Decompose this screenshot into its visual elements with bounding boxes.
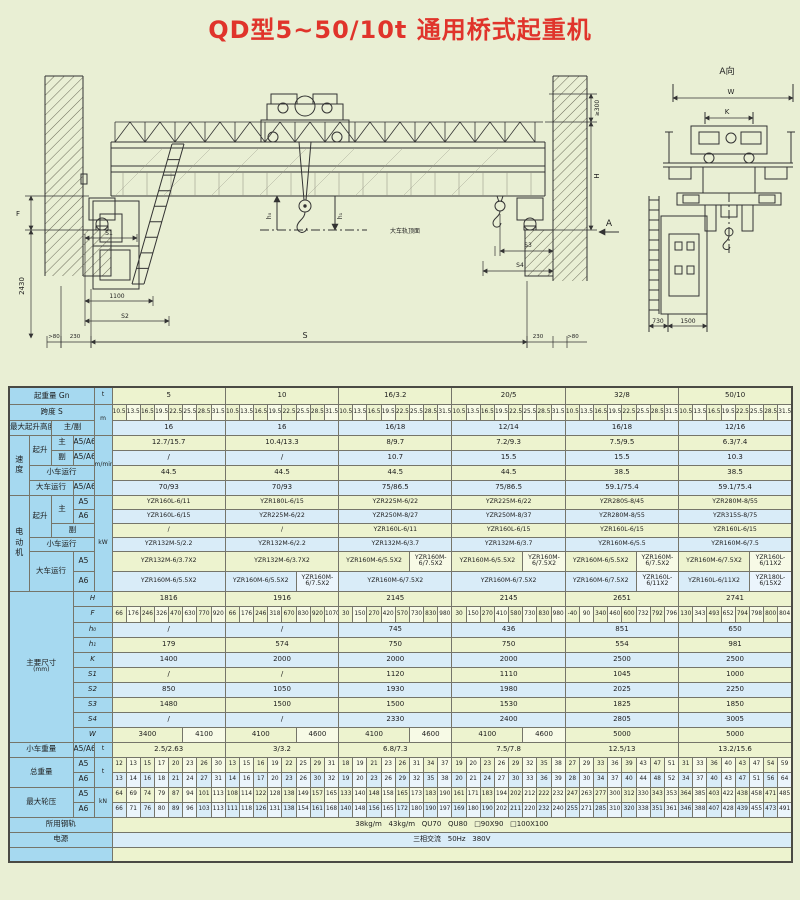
capacity-value: 16/3.2 [339, 387, 452, 404]
total-weight-a6: 40 [622, 772, 636, 787]
span-value: 19.5 [381, 404, 395, 420]
dim-K: 1400 [112, 652, 225, 667]
speed-hoist-aux: / [225, 450, 338, 465]
dim-S3: 1500 [339, 697, 452, 712]
motor-hoist-main-a5: YZR225M-6/22 [339, 495, 452, 509]
dim-F: 580 [509, 606, 523, 622]
dim-S3: 1825 [565, 697, 678, 712]
wheel-load-a5: 385 [693, 787, 707, 802]
wheel-load-a5: 113 [211, 787, 225, 802]
dim-F: 340 [594, 606, 608, 622]
wheel-load-a5: 148 [367, 787, 381, 802]
total-weight-a6: 34 [679, 772, 693, 787]
wheel-load-a5: 165 [324, 787, 338, 802]
total-weight-a5: 26 [197, 757, 211, 772]
table-row: h₁179574750750554981 [9, 637, 792, 652]
dim-H: 1916 [225, 591, 338, 606]
label-power: 电源 [9, 832, 112, 847]
table-row: h₀//745436851650 [9, 622, 792, 637]
total-weight-a6: 39 [551, 772, 565, 787]
total-weight-a5: 35 [537, 757, 551, 772]
table-row: S3148015001500153018251850 [9, 697, 792, 712]
label-trolley-travel: 小车运行 [29, 537, 94, 551]
span-value: 31.5 [664, 404, 678, 420]
motor-bridge-a6: YZR160M-6/7.5X2 [565, 571, 636, 591]
label-span: 跨度 S [9, 404, 94, 420]
wheel-load-a6: 220 [523, 802, 537, 817]
wheel-load-a5: 312 [622, 787, 636, 802]
dim-F: 460 [608, 606, 622, 622]
total-weight-a5: 43 [735, 757, 749, 772]
label-bridge-travel: 大车运行 [29, 551, 73, 591]
total-weight-a5: 33 [594, 757, 608, 772]
motor-trolley: YZR132M-6/3.7 [452, 537, 565, 551]
wheel-load-a5: 194 [494, 787, 508, 802]
total-weight-a6: 47 [735, 772, 749, 787]
motor-hoist-aux: / [225, 523, 338, 537]
total-weight-a6: 52 [664, 772, 678, 787]
total-weight-a5: 29 [310, 757, 324, 772]
total-weight-a6: 40 [707, 772, 721, 787]
speed-hoist-main: 10.4/13.3 [225, 435, 338, 450]
total-weight-a5: 31 [679, 757, 693, 772]
dim-S1: 1000 [679, 667, 792, 682]
dim-F: 798 [749, 606, 763, 622]
motor-bridge-a6: YZR160L-6/11X2 [679, 571, 750, 591]
span-value: 13.5 [693, 404, 707, 420]
span-value: 10.5 [679, 404, 693, 420]
wheel-load-a5: 140 [353, 787, 367, 802]
wheel-load-a6: 240 [551, 802, 565, 817]
wheel-load-a5: 149 [296, 787, 310, 802]
dim-F: 318 [268, 606, 282, 622]
wheel-load-a5: 330 [636, 787, 650, 802]
dim-S1: 1110 [452, 667, 565, 682]
label-main: 主 [51, 435, 73, 450]
lift-height-value: 16 [112, 420, 225, 435]
total-weight-a5: 20 [466, 757, 480, 772]
total-weight-a5: 18 [339, 757, 353, 772]
wheel-load-a5: 277 [594, 787, 608, 802]
label-empty [9, 847, 112, 862]
unit-kn: kN [94, 787, 112, 817]
total-weight-a5: 31 [324, 757, 338, 772]
wheel-load-a5: 138 [282, 787, 296, 802]
total-weight-a6: 14 [126, 772, 140, 787]
total-weight-a5: 29 [509, 757, 523, 772]
wheel-load-a5: 232 [551, 787, 565, 802]
span-value: 13.5 [240, 404, 254, 420]
unit-kw: kW [94, 495, 112, 591]
table-row: A6YZR160L-6/15YZR225M-6/22YZR250M-8/27YZ… [9, 509, 792, 523]
dim-K: 2500 [565, 652, 678, 667]
label-hoist: 起升 [29, 495, 51, 537]
total-weight-a6: 37 [693, 772, 707, 787]
total-weight-a6: 26 [296, 772, 310, 787]
wheel-load-a6: 118 [240, 802, 254, 817]
capacity-value: 50/10 [679, 387, 792, 404]
dim-F: 770 [197, 606, 211, 622]
span-value: 16.5 [367, 404, 381, 420]
main-hook [297, 142, 311, 232]
total-weight-a6: 37 [608, 772, 622, 787]
crane-drawing: F 2430 S1 1100 S2 >80 230 S 230 >80 ≥300… [5, 46, 795, 380]
dim-F: 980 [551, 606, 565, 622]
total-weight-a5: 32 [523, 757, 537, 772]
total-weight-a5: 23 [183, 757, 197, 772]
span-value: 28.5 [424, 404, 438, 420]
total-weight-a6: 24 [183, 772, 197, 787]
power-supply: 三相交流 50Hz 380V [112, 832, 792, 847]
dim-key-W: W [73, 727, 112, 742]
table-row: A6YZR160M-6/5.5X2YZR160M-6/5.5X2YZR160M-… [9, 571, 792, 591]
dim-W: 4600 [409, 727, 452, 742]
motor-trolley: YZR132M-5/2.2 [112, 537, 225, 551]
motor-hoist-main-a6: YZR250M-8/27 [339, 509, 452, 523]
total-weight-a6: 16 [140, 772, 154, 787]
wheel-load-a6: 320 [622, 802, 636, 817]
motor-bridge-a6: YZR160M-6/7.5X2 [452, 571, 565, 591]
rail-types: 38kg/m 43kg/m QU70 QU80 □90X90 □100X100 [112, 817, 792, 832]
wheel-load-a6: 351 [650, 802, 664, 817]
dim-label-s2: S2 [121, 313, 129, 320]
dim-key-S4: S4 [73, 712, 112, 727]
wheel-load-a6: 190 [480, 802, 494, 817]
motor-bridge-a5: YZR132M-6/3.7X2 [225, 551, 338, 571]
total-weight-a6: 16 [240, 772, 254, 787]
total-weight-a5: 38 [551, 757, 565, 772]
total-weight-a6: 21 [466, 772, 480, 787]
dim-W: 3400 [112, 727, 183, 742]
total-weight-a5: 33 [693, 757, 707, 772]
spec-table: 起重量 Gnt51016/3.220/532/850/10跨度 Sm10.513… [8, 386, 793, 863]
motor-hoist-main-a6: YZR315S-8/75 [679, 509, 792, 523]
wheel-load-a6: 138 [282, 802, 296, 817]
wheel-load-a6: 80 [154, 802, 168, 817]
dim-S2: 850 [112, 682, 225, 697]
empty-cell [112, 847, 792, 862]
motor-bridge-a5: YZR160M-6/7.5X2 [679, 551, 750, 571]
wheel-load-a6: 180 [466, 802, 480, 817]
span-value: 28.5 [310, 404, 324, 420]
dim-F: 150 [353, 606, 367, 622]
motor-hoist-main-a5: YZR160L-6/11 [112, 495, 225, 509]
wheel-load-a5: 79 [154, 787, 168, 802]
wheel-load-a6: 455 [749, 802, 763, 817]
dim-label-h0: h₀ [266, 212, 273, 219]
dim-S4: / [225, 712, 338, 727]
table-row: S4//2330240028053005 [9, 712, 792, 727]
span-value: 10.5 [452, 404, 466, 420]
motor-bridge-a6: YZR160M-6/5.5X2 [225, 571, 296, 591]
dim-S1: / [112, 667, 225, 682]
dim-F: 796 [664, 606, 678, 622]
motor-bridge-a6: YZR180L-6/15X2 [749, 571, 792, 591]
wheel-load-a6: 439 [735, 802, 749, 817]
wheel-load-a5: 300 [608, 787, 622, 802]
dim-S4: / [112, 712, 225, 727]
dim-F: 600 [622, 606, 636, 622]
end-view [649, 84, 795, 332]
total-weight-a5: 23 [381, 757, 395, 772]
total-weight-a6: 35 [424, 772, 438, 787]
dim-F: 792 [650, 606, 664, 622]
dim-h0: 650 [679, 622, 792, 637]
dim-F: 90 [579, 606, 593, 622]
dim-key-S1: S1 [73, 667, 112, 682]
wheel-load-a5: 128 [268, 787, 282, 802]
total-weight-a6: 20 [452, 772, 466, 787]
dim-S2: 1930 [339, 682, 452, 697]
dim-F: 246 [140, 606, 154, 622]
dim-h0: 851 [565, 622, 678, 637]
span-value: 25.5 [749, 404, 763, 420]
dim-S4: 2400 [452, 712, 565, 727]
span-value: 13.5 [126, 404, 140, 420]
total-weight-a5: 17 [154, 757, 168, 772]
label-motor: 电 动 机 [9, 495, 29, 591]
total-weight-a5: 13 [225, 757, 239, 772]
span-value: 31.5 [324, 404, 338, 420]
span-value: 25.5 [636, 404, 650, 420]
label-a5: A5 [73, 551, 94, 571]
motor-hoist-aux: YZR160L-6/15 [452, 523, 565, 537]
dim-F: 343 [693, 606, 707, 622]
dim-key-S2: S2 [73, 682, 112, 697]
total-weight-a6: 43 [721, 772, 735, 787]
span-value: 22.5 [169, 404, 183, 420]
dim-H: 2651 [565, 591, 678, 606]
table-row: 主要尺寸(mm)H181619162145214526512741 [9, 591, 792, 606]
wheel-load-a6: 113 [211, 802, 225, 817]
label-a6: A6 [73, 571, 94, 591]
wheel-load-a6: 180 [409, 802, 423, 817]
total-weight-a6: 32 [324, 772, 338, 787]
wheel-load-a6: 148 [353, 802, 367, 817]
dim-F: 830 [537, 606, 551, 622]
wheel-load-a5: 183 [480, 787, 494, 802]
total-weight-a6: 44 [636, 772, 650, 787]
total-weight-a6: 19 [339, 772, 353, 787]
dim-W: 4100 [225, 727, 296, 742]
stairway [132, 144, 184, 284]
span-value: 31.5 [551, 404, 565, 420]
motor-bridge-a6: YZR160M-6/5.5X2 [112, 571, 225, 591]
dim-label-730: 730 [652, 318, 664, 325]
dim-F: 30 [339, 606, 353, 622]
motor-trolley: YZR160M-6/5.5 [565, 537, 678, 551]
total-weight-a5: 12 [112, 757, 126, 772]
wheel-load-a6: 388 [693, 802, 707, 817]
span-value: 10.5 [112, 404, 126, 420]
lift-height-value: 16/18 [565, 420, 678, 435]
total-weight-a5: 34 [424, 757, 438, 772]
dim-S3: 1480 [112, 697, 225, 712]
dim-F: 800 [764, 606, 778, 622]
table-row: 电源三相交流 50Hz 380V [9, 832, 792, 847]
dim-F: 470 [169, 606, 183, 622]
motor-hoist-main-a5: YZR180L-6/15 [225, 495, 338, 509]
wheel-load-a5: 101 [197, 787, 211, 802]
total-weight-a5: 30 [211, 757, 225, 772]
dim-F: 830 [424, 606, 438, 622]
dim-F: 150 [466, 606, 480, 622]
page-title: QD型5~50/10t 通用桥式起重机 [0, 0, 800, 46]
label-trolley-travel: 小车运行 [29, 465, 94, 480]
total-weight-a6: 23 [367, 772, 381, 787]
dim-key-h0: h₀ [73, 622, 112, 637]
motor-hoist-aux: YZR160L-6/11 [339, 523, 452, 537]
dim-F: 830 [296, 606, 310, 622]
wheel-load-a5: 190 [438, 787, 452, 802]
speed-trolley: 44.5 [225, 465, 338, 480]
table-row: A666717680899610311311111812613113815416… [9, 802, 792, 817]
wheel-load-a6: 346 [679, 802, 693, 817]
span-value: 22.5 [622, 404, 636, 420]
label-a6: A6 [73, 772, 94, 787]
motor-hoist-aux: / [112, 523, 225, 537]
unit-t: t [94, 757, 112, 787]
dim-label-f: F [16, 210, 20, 218]
total-weight-a5: 31 [409, 757, 423, 772]
dim-key-K: K [73, 652, 112, 667]
dim-key-F: F [73, 606, 112, 622]
dim-F: 920 [211, 606, 225, 622]
label-rail: 所用钢轨 [9, 817, 112, 832]
motor-trolley: YZR132M-6/3.7 [339, 537, 452, 551]
wheel-load-a5: 94 [183, 787, 197, 802]
span-value: 13.5 [466, 404, 480, 420]
wheel-load-a5: 64 [112, 787, 126, 802]
dim-F: 410 [494, 606, 508, 622]
total-weight-a5: 22 [282, 757, 296, 772]
total-weight-a6: 14 [225, 772, 239, 787]
wheel-load-a6: 310 [608, 802, 622, 817]
motor-hoist-aux: YZR160L-6/15 [679, 523, 792, 537]
dim-h1: 981 [679, 637, 792, 652]
dim-S2: 1050 [225, 682, 338, 697]
span-value: 22.5 [395, 404, 409, 420]
trolley-weight: 2.5/2.63 [112, 742, 225, 757]
wheel-load-a6: 168 [324, 802, 338, 817]
wheel-load-a6: 126 [254, 802, 268, 817]
total-weight-a6: 48 [650, 772, 664, 787]
wheel-load-a5: 114 [240, 787, 254, 802]
total-weight-a6: 27 [494, 772, 508, 787]
table-row: 小车运行YZR132M-5/2.2YZR132M-6/2.2YZR132M-6/… [9, 537, 792, 551]
speed-bridge: 59.1/75.4 [565, 480, 678, 495]
motor-hoist-aux: YZR160L-6/15 [565, 523, 678, 537]
speed-hoist-main: 12.7/15.7 [112, 435, 225, 450]
dim-F: 130 [679, 606, 693, 622]
span-value: 22.5 [735, 404, 749, 420]
table-row: 所用钢轨38kg/m 43kg/m QU70 QU80 □90X90 □100X… [9, 817, 792, 832]
dim-K: 2000 [225, 652, 338, 667]
dim-F: 270 [480, 606, 494, 622]
wheel-load-a6: 161 [310, 802, 324, 817]
total-weight-a5: 37 [438, 757, 452, 772]
span-value: 28.5 [764, 404, 778, 420]
total-weight-a5: 26 [494, 757, 508, 772]
motor-trolley: YZR160M-6/7.5 [679, 537, 792, 551]
motor-hoist-main-a6: YZR280M-8/55 [565, 509, 678, 523]
total-weight-a5: 19 [353, 757, 367, 772]
speed-hoist-main: 7.5/9.5 [565, 435, 678, 450]
wheel-load-a5: 161 [452, 787, 466, 802]
motor-bridge-a5: YZR132M-6/3.7X2 [112, 551, 225, 571]
motor-hoist-main-a6: YZR225M-6/22 [225, 509, 338, 523]
speed-hoist-aux: 15.5 [452, 450, 565, 465]
span-value: 13.5 [353, 404, 367, 420]
dim-K: 2500 [679, 652, 792, 667]
motor-bridge-a6: YZR160M-6/7.5X2 [296, 571, 339, 591]
wheel-load-a6: 338 [636, 802, 650, 817]
dim-F: 246 [254, 606, 268, 622]
wheel-load-a6: 190 [424, 802, 438, 817]
dim-F: 420 [381, 606, 395, 622]
dim-F: 730 [409, 606, 423, 622]
dim-h1: 554 [565, 637, 678, 652]
capacity-value: 5 [112, 387, 225, 404]
total-weight-a5: 23 [480, 757, 494, 772]
label-a5a6: A5/A6 [73, 450, 94, 465]
motor-hoist-main-a5: YZR225M-6/22 [452, 495, 565, 509]
dim-label-h: H [593, 173, 601, 178]
dim-label-gt80-right: >80 [567, 334, 579, 340]
span-value: 16.5 [594, 404, 608, 420]
label-a6: A6 [73, 802, 94, 817]
motor-bridge-a5: YZR160M-6/5.5X2 [452, 551, 523, 571]
total-weight-a5: 21 [367, 757, 381, 772]
wheel-load-a6: 428 [721, 802, 735, 817]
bridge-girder [111, 142, 545, 196]
dim-F: 270 [367, 606, 381, 622]
dim-F: 66 [225, 606, 239, 622]
label-max-wheel-load: 最大轮压 [9, 787, 73, 817]
wheel-load-a6: 271 [579, 802, 593, 817]
span-value: 28.5 [197, 404, 211, 420]
wheel-load-a5: 69 [126, 787, 140, 802]
wheel-load-a6: 89 [169, 802, 183, 817]
dim-W: 4100 [452, 727, 523, 742]
capacity-value: 32/8 [565, 387, 678, 404]
motor-bridge-a5: YZR160M-6/5.5X2 [565, 551, 636, 571]
total-weight-a6: 64 [778, 772, 792, 787]
span-value: 22.5 [509, 404, 523, 420]
lift-height-value: 16/18 [339, 420, 452, 435]
span-value: 28.5 [537, 404, 551, 420]
label-lift-height: 最大起升高度 [9, 420, 51, 435]
label-trolley-weight: 小车重量 [9, 742, 73, 757]
trolley-weight: 7.5/7.8 [452, 742, 565, 757]
total-weight-a5: 19 [268, 757, 282, 772]
wheel-load-a6: 111 [225, 802, 239, 817]
lift-height-value: 12/16 [679, 420, 792, 435]
motor-bridge-a6: YZR160M-6/7.5X2 [339, 571, 452, 591]
label-a5a6: A5/A6 [73, 435, 94, 450]
dim-F: 980 [438, 606, 452, 622]
dim-K: 2000 [452, 652, 565, 667]
wheel-load-a5: 438 [735, 787, 749, 802]
dim-H: 1816 [112, 591, 225, 606]
dim-S2: 1980 [452, 682, 565, 697]
speed-hoist-main: 8/9.7 [339, 435, 452, 450]
total-weight-a6: 28 [565, 772, 579, 787]
total-weight-a6: 31 [211, 772, 225, 787]
total-weight-a6: 36 [537, 772, 551, 787]
dim-W: 4600 [523, 727, 566, 742]
dim-S3: 1530 [452, 697, 565, 712]
